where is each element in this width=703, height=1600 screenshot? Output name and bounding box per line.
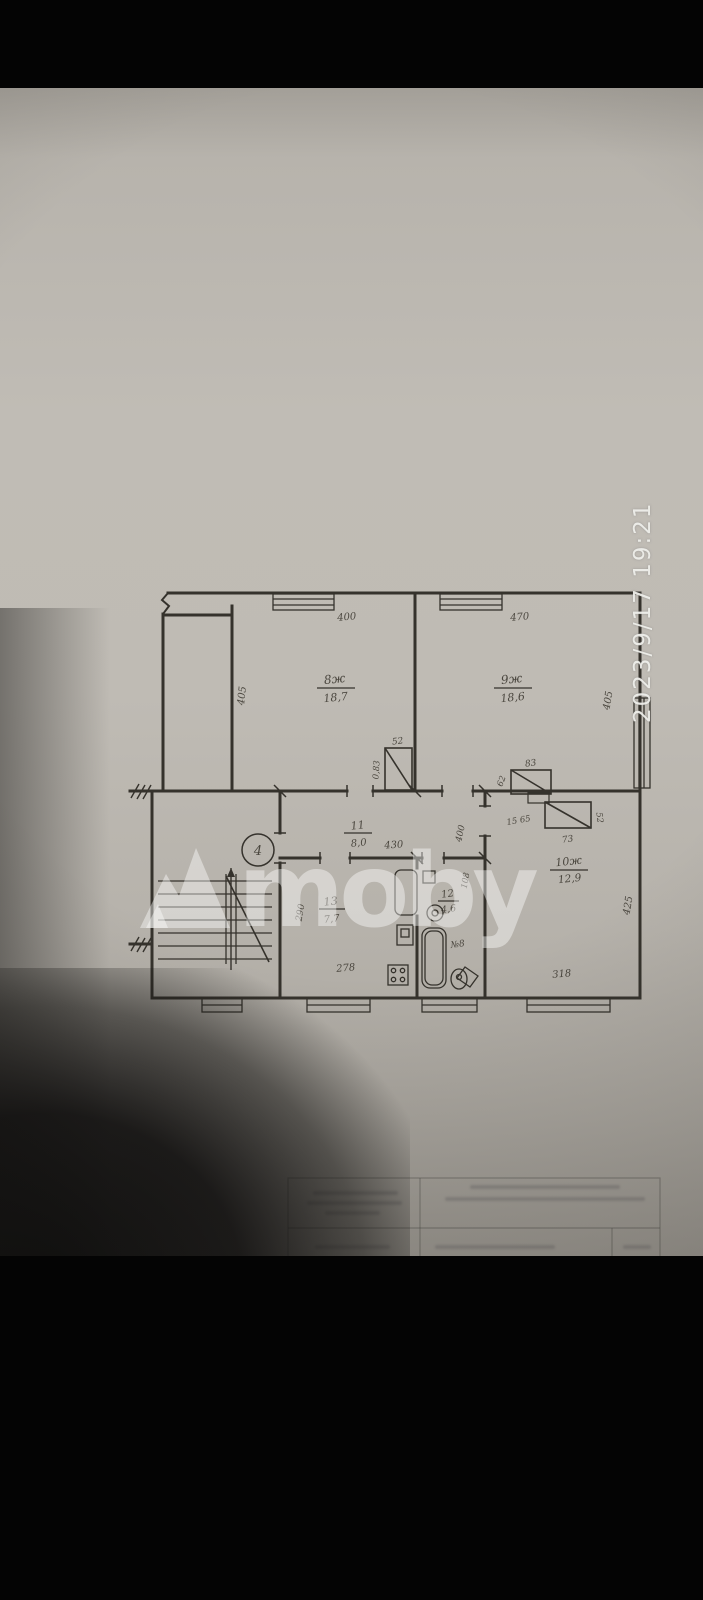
printed-text-strip	[307, 1201, 402, 1205]
door-leaf	[395, 870, 417, 915]
printed-text-strip	[623, 1245, 651, 1249]
svg-text:83: 83	[524, 758, 537, 770]
svg-text:405: 405	[601, 690, 615, 712]
svg-text:13: 13	[323, 894, 338, 908]
printed-text-strip	[435, 1245, 555, 1249]
svg-text:425: 425	[621, 895, 635, 917]
svg-text:290: 290	[294, 903, 307, 923]
kitchen-label: 13 7,7 278 290	[294, 894, 355, 975]
svg-text:18,7: 18,7	[323, 690, 349, 705]
floor-plan: 4 8ж 18,7	[122, 566, 662, 1036]
svg-text:9ж: 9ж	[500, 671, 523, 687]
windows	[202, 594, 650, 1012]
svg-text:18,6: 18,6	[500, 690, 526, 705]
stove-icon	[388, 965, 408, 985]
room9-label: 9ж 18,6 470 405	[494, 611, 616, 712]
room8-label: 8ж 18,7 400 405	[236, 611, 357, 707]
printed-text-strip	[470, 1185, 620, 1189]
printed-text-strip	[315, 1245, 390, 1249]
svg-text:12,9: 12,9	[557, 872, 582, 886]
svg-text:52: 52	[593, 812, 604, 824]
svg-text:0,83: 0,83	[371, 760, 382, 780]
camera-timestamp: 2023/9/17 19:21	[630, 433, 672, 723]
svg-text:62: 62	[496, 775, 509, 789]
title-block: ул. Заводская № 8, кв. 4 выкопировка ква…	[285, 1173, 685, 1256]
printed-text-strip	[325, 1211, 380, 1215]
printed-text-strip	[313, 1191, 398, 1195]
kitchen-sink-icon	[397, 925, 413, 945]
top-black-bar	[0, 0, 703, 88]
svg-text:12: 12	[441, 888, 455, 901]
svg-text:405: 405	[236, 686, 249, 707]
svg-text:52: 52	[391, 736, 404, 748]
room10-label: 10ж 12,9 318 425	[550, 854, 636, 981]
bath-shelf	[423, 871, 435, 883]
svg-text:№8: №8	[449, 939, 466, 951]
printed-text-strip	[445, 1197, 645, 1201]
svg-text:7,7: 7,7	[323, 913, 341, 926]
paper-photo: 4 8ж 18,7	[0, 88, 703, 1256]
svg-text:8,0: 8,0	[350, 837, 368, 850]
stair-flat-number: 4	[253, 844, 262, 859]
svg-text:400: 400	[454, 824, 468, 844]
photo-of-floor-plan: { "photo": { "timestamp": "2023/9/17 19:…	[0, 0, 703, 1600]
svg-text:470: 470	[509, 611, 531, 624]
bottom-black-bar	[0, 1256, 703, 1600]
svg-text:8ж: 8ж	[323, 671, 346, 687]
svg-text:278: 278	[335, 962, 356, 975]
svg-text:318: 318	[552, 968, 572, 981]
svg-text:430: 430	[383, 839, 404, 851]
svg-text:15 65: 15 65	[506, 814, 532, 828]
svg-text:400: 400	[336, 611, 358, 624]
svg-text:73: 73	[561, 834, 574, 846]
svg-text:4,6: 4,6	[439, 903, 456, 916]
svg-text:11: 11	[350, 818, 365, 832]
svg-text:108: 108	[460, 871, 473, 889]
shadow-left-edge	[0, 608, 110, 1256]
walls	[130, 593, 640, 998]
staircase	[158, 868, 272, 970]
wall-break-hatch	[131, 784, 151, 952]
svg-text:10ж: 10ж	[555, 854, 583, 870]
corridor-label: 11 8,0 430 400	[344, 818, 468, 851]
